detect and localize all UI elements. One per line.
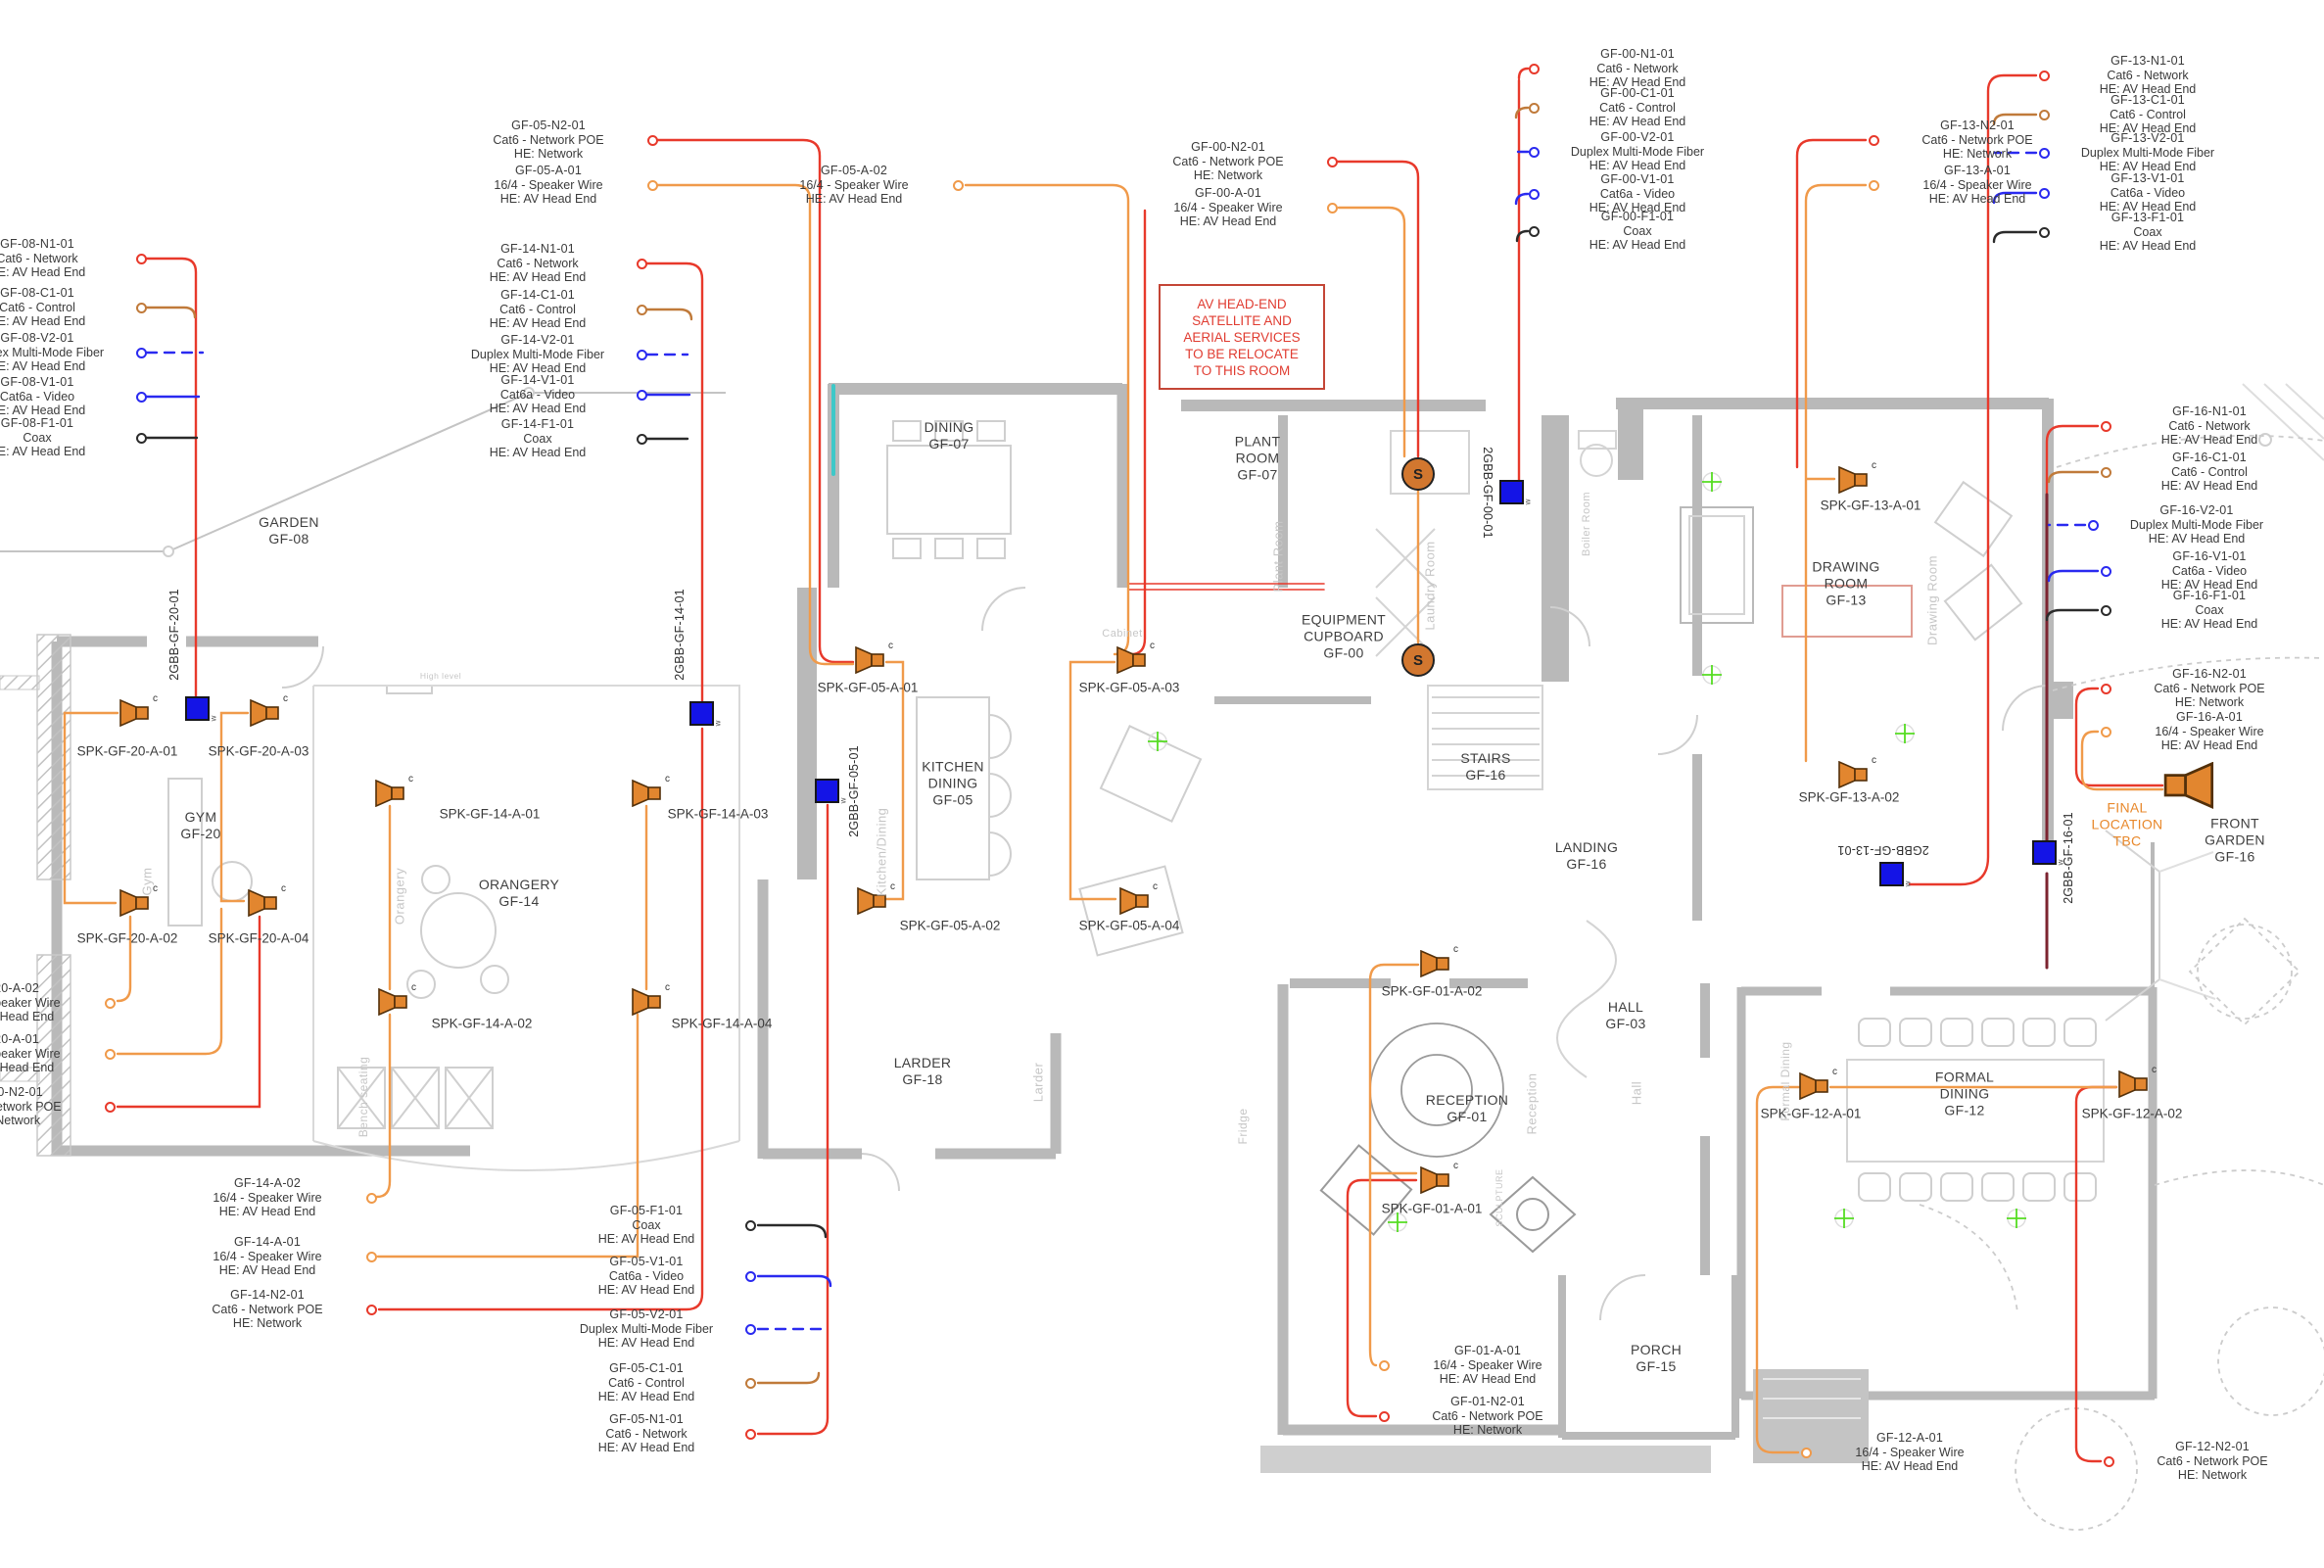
- speaker-label: SPK-GF-14-A-01: [440, 807, 541, 822]
- room-label-line: PLANT: [1235, 434, 1281, 451]
- callout-terminal-circle: [1529, 103, 1540, 114]
- room-label-line: GF-07: [925, 436, 974, 452]
- callout-cable: Cat6 - Network: [553, 1427, 739, 1442]
- cable-callout: GF-20-A-0116/4 - Speaker WireHE: AV Head…: [0, 1032, 99, 1075]
- architect-room-name: Reception: [1525, 1072, 1540, 1134]
- callout-cable: Coax: [445, 432, 631, 447]
- callout-dest: HE: AV Head End: [2116, 479, 2302, 494]
- speaker-icon: [2116, 1070, 2150, 1103]
- callout-id: GF-08-V1-01: [0, 375, 130, 390]
- callout-id: GF-12-N2-01: [2119, 1440, 2305, 1454]
- callout-id: GF-14-A-01: [174, 1235, 360, 1250]
- distribution-square-label: 2GBB-GF-05-01: [847, 745, 861, 837]
- callout-id: GF-13-F1-01: [2055, 211, 2241, 225]
- callout-cable: Duplex Multi-Mode Fiber: [2055, 146, 2241, 161]
- callout-id: GF-08-F1-01: [0, 416, 130, 431]
- callout-dest: HE: AV Head End: [445, 402, 631, 416]
- distribution-square-label: 2GBB-GF-20-01: [167, 589, 181, 681]
- callout-dest: HE: AV Head End: [553, 1232, 739, 1247]
- callout-dest: HE: AV Head End: [174, 1263, 360, 1278]
- callout-terminal-circle: [1529, 147, 1540, 158]
- distribution-square-label: 2GBB-GF-00-01: [1481, 447, 1494, 539]
- cable-callout: GF-16-A-0116/4 - Speaker WireHE: AV Head…: [2116, 710, 2302, 753]
- room-label-line: GARDEN: [2205, 832, 2265, 849]
- cable-callout: GF-13-V2-01Duplex Multi-Mode FiberHE: AV…: [2055, 131, 2241, 174]
- callout-terminal-circle: [2101, 467, 2111, 478]
- callout-cable: Cat6 - Network: [1544, 62, 1731, 76]
- callout-terminal-circle: [1801, 1448, 1812, 1458]
- callout-terminal-circle: [637, 390, 647, 401]
- callout-terminal-circle: [2104, 1456, 2114, 1467]
- callout-id: GF-13-C1-01: [2055, 93, 2241, 108]
- callout-cable: Duplex Multi-Mode Fiber: [445, 348, 631, 362]
- room-label-line: GARDEN: [259, 514, 319, 531]
- room-label-line: CUPBOARD: [1302, 629, 1386, 645]
- callout-id: GF-13-V1-01: [2055, 171, 2241, 186]
- speaker-icon: [376, 988, 409, 1021]
- ceiling-point-marker: [1700, 663, 1724, 687]
- cable-callout: GF-00-N2-01Cat6 - Network POEHE: Network: [1135, 140, 1321, 183]
- callout-terminal-circle: [637, 434, 647, 445]
- cable-callout: GF-14-C1-01Cat6 - ControlHE: AV Head End: [445, 288, 631, 331]
- callout-id: GF-05-C1-01: [553, 1361, 739, 1376]
- callout-terminal-circle: [637, 350, 647, 360]
- callout-terminal-circle: [2039, 227, 2050, 238]
- room-label-line: GF-14: [479, 893, 559, 910]
- callout-terminal-circle: [1379, 1360, 1390, 1371]
- cable-callout: GF-08-V1-01Cat6a - VideoHE: AV Head End: [0, 375, 130, 418]
- callout-terminal-circle: [1379, 1411, 1390, 1422]
- architect-room-name: Gym: [140, 868, 155, 896]
- cable-callout: GF-08-N1-01Cat6 - NetworkHE: AV Head End: [0, 237, 130, 280]
- speaker-icon: [1836, 761, 1870, 793]
- callout-id: GF-20-N2-01: [0, 1085, 99, 1100]
- callout-id: GF-01-A-01: [1395, 1344, 1581, 1358]
- room-label-line: GF-18: [894, 1071, 952, 1088]
- architect-room-name: Cabinet: [1102, 628, 1142, 640]
- room-label: STAIRSGF-16: [1460, 750, 1510, 784]
- callout-id: GF-16-V1-01: [2116, 549, 2302, 564]
- room-label: LANDINGGF-16: [1555, 839, 1618, 873]
- callout-terminal-circle: [745, 1271, 756, 1282]
- room-label: ORANGERYGF-14: [479, 877, 559, 910]
- cable-callout: GF-00-V2-01Duplex Multi-Mode FiberHE: AV…: [1544, 130, 1731, 173]
- callout-terminal-circle: [105, 998, 116, 1009]
- room-label-line: GF-03: [1605, 1016, 1645, 1032]
- callout-id: GF-00-V1-01: [1544, 172, 1731, 187]
- callout-dest: HE: AV Head End: [0, 314, 130, 329]
- callout-dest: HE: AV Head End: [1544, 159, 1731, 173]
- callout-terminal-circle: [637, 305, 647, 315]
- cable-callout: GF-16-N1-01Cat6 - NetworkHE: AV Head End: [2116, 404, 2302, 448]
- callout-id: GF-05-A-02: [761, 164, 947, 178]
- callout-dest: HE: AV Head End: [553, 1390, 739, 1404]
- speaker-label: SPK-GF-20-A-03: [209, 744, 309, 759]
- tbc-annotation: FINALLOCATIONTBC: [2092, 800, 2163, 850]
- callout-dest: HE: Network: [1135, 168, 1321, 183]
- callout-dest: HE: AV Head End: [445, 446, 631, 460]
- room-label: GYMGF-20: [180, 809, 220, 842]
- callout-dest: HE: AV Head End: [2116, 433, 2302, 448]
- room-label: PORCHGF-15: [1631, 1342, 1682, 1375]
- cable-callout: GF-05-N1-01Cat6 - NetworkHE: AV Head End: [553, 1412, 739, 1455]
- room-label: PLANTROOMGF-07: [1235, 434, 1281, 484]
- callout-cable: 16/4 - Speaker Wire: [0, 996, 99, 1011]
- callout-terminal-circle: [1869, 180, 1879, 191]
- room-label-line: ROOM: [1235, 451, 1281, 467]
- cable-callout: GF-20-N2-01Cat6 - Network POEHE: Network: [0, 1085, 99, 1128]
- callout-terminal-circle: [2101, 605, 2111, 616]
- callout-dest: HE: AV Head End: [174, 1205, 360, 1219]
- callout-terminal-circle: [637, 259, 647, 269]
- ceiling-point-marker: [2005, 1207, 2028, 1230]
- room-label-line: KITCHEN: [922, 759, 984, 776]
- callout-cable: Coax: [0, 431, 130, 446]
- callout-dest: HE: AV Head End: [0, 445, 130, 459]
- large-speaker-icon: [2160, 762, 2217, 814]
- speaker-c-mark: c: [411, 982, 416, 993]
- architect-room-name: Plant Room: [1271, 521, 1286, 593]
- cable-callout: GF-05-A-0116/4 - Speaker WireHE: AV Head…: [455, 164, 641, 207]
- callout-cable: Duplex Multi-Mode Fiber: [553, 1322, 739, 1337]
- cable-callout: GF-08-V2-01Duplex Multi-Mode FiberHE: AV…: [0, 331, 130, 374]
- relocation-note-line: TO BE RELOCATE: [1161, 346, 1323, 362]
- cable-callout: GF-13-A-0116/4 - Speaker WireHE: AV Head…: [1884, 164, 2070, 207]
- callout-terminal-circle: [745, 1324, 756, 1335]
- room-label-line: DINING: [1935, 1086, 1994, 1103]
- architect-room-name: Fridge: [1236, 1108, 1250, 1144]
- cable-callout: GF-14-V1-01Cat6a - VideoHE: AV Head End: [445, 373, 631, 416]
- relocation-note-line: AV HEAD-END: [1161, 296, 1323, 312]
- speaker-icon: [1418, 1166, 1451, 1199]
- satellite-point: S: [1401, 643, 1435, 677]
- room-label-line: GF-20: [180, 826, 220, 842]
- cable-callout: GF-14-A-0216/4 - Speaker WireHE: AV Head…: [174, 1176, 360, 1219]
- callout-cable: 16/4 - Speaker Wire: [455, 178, 641, 193]
- room-label-line: GF-13: [1812, 593, 1879, 609]
- callout-dest: HE: AV Head End: [1817, 1459, 2003, 1474]
- callout-id: GF-13-V2-01: [2055, 131, 2241, 146]
- callout-terminal-circle: [366, 1305, 377, 1315]
- room-label-line: EQUIPMENT: [1302, 612, 1386, 629]
- callout-cable: Cat6 - Network POE: [1884, 133, 2070, 148]
- ceiling-point-marker: [1893, 722, 1917, 745]
- callout-cable: Cat6 - Network: [2055, 69, 2241, 83]
- callout-dest: HE: AV Head End: [1395, 1372, 1581, 1387]
- ceiling-point-marker: [1832, 1207, 1856, 1230]
- distribution-square-label: 2GBB-GF-14-01: [673, 589, 687, 681]
- callout-terminal-circle: [2039, 110, 2050, 120]
- callout-id: GF-08-N1-01: [0, 237, 130, 252]
- cable-callout: GF-16-C1-01Cat6 - ControlHE: AV Head End: [2116, 451, 2302, 494]
- callout-id: GF-16-C1-01: [2116, 451, 2302, 465]
- room-label-line: HALL: [1605, 999, 1645, 1016]
- speaker-icon: [1836, 466, 1870, 499]
- cable-callout: GF-00-F1-01CoaxHE: AV Head End: [1544, 210, 1731, 253]
- room-label-line: GF-01: [1426, 1109, 1508, 1125]
- callout-id: GF-08-V2-01: [0, 331, 130, 346]
- callout-terminal-circle: [2101, 727, 2111, 737]
- callout-terminal-circle: [2039, 71, 2050, 81]
- relocation-note: AV HEAD-ENDSATELLITE ANDAERIAL SERVICEST…: [1159, 284, 1325, 390]
- callout-id: GF-01-N2-01: [1395, 1395, 1581, 1409]
- speaker-label: SPK-GF-20-A-01: [77, 744, 178, 759]
- callout-cable: 16/4 - Speaker Wire: [174, 1250, 360, 1264]
- callout-dest: HE: AV Head End: [0, 1061, 99, 1075]
- callout-id: GF-14-V2-01: [445, 333, 631, 348]
- room-label-line: GF-07: [1235, 467, 1281, 484]
- callout-terminal-circle: [136, 254, 147, 264]
- callout-dest: HE: Network: [174, 1316, 360, 1331]
- callout-dest: HE: AV Head End: [553, 1336, 739, 1351]
- room-label-line: RECEPTION: [1426, 1092, 1508, 1109]
- cable-callout: GF-01-A-0116/4 - Speaker WireHE: AV Head…: [1395, 1344, 1581, 1387]
- room-label: FORMALDININGGF-12: [1935, 1069, 1994, 1119]
- cable-callout: GF-13-C1-01Cat6 - ControlHE: AV Head End: [2055, 93, 2241, 136]
- speaker-c-mark: c: [408, 774, 413, 784]
- speaker-label: SPK-GF-14-A-03: [668, 807, 769, 822]
- callout-terminal-circle: [647, 135, 658, 146]
- room-label: GARDENGF-08: [259, 514, 319, 547]
- tbc-annotation-line: LOCATION: [2092, 817, 2163, 833]
- network-distribution-square: [185, 696, 210, 721]
- callout-dest: HE: AV Head End: [445, 316, 631, 331]
- speaker-label: SPK-GF-13-A-02: [1799, 790, 1900, 805]
- room-label-line: LANDING: [1555, 839, 1618, 856]
- callout-cable: 16/4 - Speaker Wire: [2116, 725, 2302, 739]
- callout-dest: HE: AV Head End: [0, 265, 130, 280]
- network-distribution-square: [1499, 480, 1524, 504]
- satellite-point: S: [1401, 457, 1435, 491]
- cable-callout: GF-16-V1-01Cat6a - VideoHE: AV Head End: [2116, 549, 2302, 593]
- callout-cable: Cat6a - Video: [553, 1269, 739, 1284]
- cable-callout: GF-16-V2-01Duplex Multi-Mode FiberHE: AV…: [2104, 503, 2290, 546]
- tbc-annotation-line: FINAL: [2092, 800, 2163, 817]
- room-label: HALLGF-03: [1605, 999, 1645, 1032]
- callout-dest: HE: Network: [2116, 695, 2302, 710]
- cable-callout: GF-16-N2-01Cat6 - Network POEHE: Network: [2116, 667, 2302, 710]
- callout-id: GF-00-V2-01: [1544, 130, 1731, 145]
- floor-plan-drawing: GF-08-N1-01Cat6 - NetworkHE: AV Head End…: [0, 0, 2324, 1568]
- callout-dest: HE: AV Head End: [0, 1010, 99, 1024]
- callout-id: GF-05-A-01: [455, 164, 641, 178]
- speaker-c-mark: c: [890, 881, 895, 892]
- callout-dest: HE: AV Head End: [0, 359, 130, 374]
- callout-cable: 16/4 - Speaker Wire: [1395, 1358, 1581, 1373]
- speaker-icon: [1418, 950, 1451, 982]
- callout-terminal-circle: [2039, 188, 2050, 199]
- callout-dest: HE: AV Head End: [2104, 532, 2290, 546]
- room-label-line: GF-16: [2205, 849, 2265, 866]
- callout-terminal-circle: [647, 180, 658, 191]
- speaker-c-mark: c: [888, 641, 893, 651]
- speaker-label: SPK-GF-13-A-01: [1821, 499, 1921, 513]
- callout-cable: Cat6a - Video: [445, 388, 631, 403]
- callout-terminal-circle: [745, 1378, 756, 1389]
- callout-terminal-circle: [366, 1193, 377, 1204]
- callout-id: GF-14-A-02: [174, 1176, 360, 1191]
- network-distribution-square: [815, 779, 839, 803]
- room-label: LARDERGF-18: [894, 1055, 952, 1088]
- room-label-line: GYM: [180, 809, 220, 826]
- callout-dest: HE: AV Head End: [445, 270, 631, 285]
- callout-id: GF-00-C1-01: [1544, 86, 1731, 101]
- callout-id: GF-05-V1-01: [553, 1255, 739, 1269]
- ceiling-point-marker: [1146, 730, 1169, 753]
- cable-callout: GF-05-V2-01Duplex Multi-Mode FiberHE: AV…: [553, 1307, 739, 1351]
- room-label-line: ROOM: [1812, 576, 1879, 593]
- speaker-label: SPK-GF-20-A-04: [209, 931, 309, 946]
- callout-id: GF-16-F1-01: [2116, 589, 2302, 603]
- speaker-c-mark: c: [281, 883, 286, 894]
- speaker-label: SPK-GF-14-A-04: [672, 1017, 773, 1031]
- architect-room-name: SCULPTURE: [1494, 1168, 1504, 1226]
- callout-id: GF-00-F1-01: [1544, 210, 1731, 224]
- callout-id: GF-13-N1-01: [2055, 54, 2241, 69]
- room-label: KITCHENDININGGF-05: [922, 759, 984, 809]
- callout-id: GF-05-N1-01: [553, 1412, 739, 1427]
- callout-cable: Duplex Multi-Mode Fiber: [0, 346, 130, 360]
- speaker-c-mark: c: [153, 693, 158, 704]
- callout-dest: HE: AV Head End: [2055, 239, 2241, 254]
- callout-id: GF-16-A-01: [2116, 710, 2302, 725]
- room-label-line: GF-12: [1935, 1103, 1994, 1119]
- room-label-line: LARDER: [894, 1055, 952, 1071]
- callout-cable: Cat6 - Network POE: [455, 133, 641, 148]
- cable-callout: GF-16-F1-01CoaxHE: AV Head End: [2116, 589, 2302, 632]
- room-label: EQUIPMENTCUPBOARDGF-00: [1302, 612, 1386, 662]
- callout-cable: Cat6 - Network POE: [2119, 1454, 2305, 1469]
- callout-cable: Cat6 - Control: [2055, 108, 2241, 122]
- cable-callout: GF-12-N2-01Cat6 - Network POEHE: Network: [2119, 1440, 2305, 1483]
- distribution-square-label: 2GBB-GF-13-01: [1837, 843, 1929, 857]
- network-distribution-square: [1879, 862, 1904, 886]
- room-label-line: DINING: [925, 419, 974, 436]
- speaker-icon: [1115, 646, 1148, 679]
- speaker-icon: [630, 780, 663, 812]
- callout-dest: HE: Network: [455, 147, 641, 162]
- callout-dest: HE: AV Head End: [1544, 238, 1731, 253]
- speaker-label: SPK-GF-05-A-03: [1079, 681, 1180, 695]
- callout-dest: HE: AV Head End: [1544, 115, 1731, 129]
- callout-terminal-circle: [1327, 203, 1338, 214]
- square-w-mark: w: [209, 716, 217, 722]
- square-w-mark: w: [1903, 881, 1912, 887]
- room-label: DRAWINGROOMGF-13: [1812, 559, 1879, 609]
- architect-room-name: Kitchen/Dining: [875, 808, 889, 897]
- callout-dest: HE: AV Head End: [2116, 738, 2302, 753]
- callout-id: GF-16-N2-01: [2116, 667, 2302, 682]
- callout-id: GF-00-A-01: [1135, 186, 1321, 201]
- speaker-icon: [373, 780, 406, 812]
- speaker-c-mark: c: [1453, 944, 1458, 955]
- callout-id: GF-16-V2-01: [2104, 503, 2290, 518]
- cable-callout: GF-00-N1-01Cat6 - NetworkHE: AV Head End: [1544, 47, 1731, 90]
- callout-cable: Cat6a - Video: [2055, 186, 2241, 201]
- speaker-label: SPK-GF-01-A-02: [1382, 984, 1483, 999]
- speaker-label: SPK-GF-14-A-02: [432, 1017, 533, 1031]
- callout-dest: HE: AV Head End: [553, 1441, 739, 1455]
- room-label-line: STAIRS: [1460, 750, 1510, 767]
- speaker-label: SPK-GF-05-A-02: [900, 919, 1001, 933]
- callout-cable: Cat6 - Network: [2116, 419, 2302, 434]
- room-label-line: FORMAL: [1935, 1069, 1994, 1086]
- speaker-icon: [1797, 1072, 1830, 1105]
- callout-cable: Cat6a - Video: [2116, 564, 2302, 579]
- callout-id: GF-12-A-01: [1817, 1431, 2003, 1446]
- callout-id: GF-13-A-01: [1884, 164, 2070, 178]
- callout-terminal-circle: [136, 433, 147, 444]
- callout-cable: Cat6 - Network POE: [2116, 682, 2302, 696]
- callout-id: GF-05-V2-01: [553, 1307, 739, 1322]
- speaker-label: SPK-GF-05-A-04: [1079, 919, 1180, 933]
- callout-terminal-circle: [136, 303, 147, 313]
- network-distribution-square: [689, 701, 714, 726]
- callout-cable: Cat6 - Network POE: [1395, 1409, 1581, 1424]
- cable-callout: GF-13-V1-01Cat6a - VideoHE: AV Head End: [2055, 171, 2241, 214]
- callout-terminal-circle: [1529, 189, 1540, 200]
- architect-room-name: Drawing Room: [1925, 555, 1940, 645]
- callout-dest: HE: AV Head End: [2116, 617, 2302, 632]
- cable-callout: GF-00-C1-01Cat6 - ControlHE: AV Head End: [1544, 86, 1731, 129]
- callout-terminal-circle: [745, 1429, 756, 1440]
- architect-room-name: Bench seating: [356, 1057, 370, 1138]
- callout-id: GF-05-F1-01: [553, 1204, 739, 1218]
- callout-id: GF-14-N2-01: [174, 1288, 360, 1303]
- callout-dest: HE: Network: [0, 1114, 99, 1128]
- callout-id: GF-16-N1-01: [2116, 404, 2302, 419]
- callout-cable: Cat6 - Network: [0, 252, 130, 266]
- cable-callout: GF-05-V1-01Cat6a - VideoHE: AV Head End: [553, 1255, 739, 1298]
- speaker-c-mark: c: [283, 693, 288, 704]
- furniture-layer: [0, 384, 2324, 1530]
- relocation-note-line: AERIAL SERVICES: [1161, 329, 1323, 346]
- ceiling-point-marker: [1700, 470, 1724, 494]
- callout-terminal-circle: [105, 1102, 116, 1113]
- callout-dest: HE: AV Head End: [553, 1283, 739, 1298]
- callout-id: GF-13-N2-01: [1884, 119, 2070, 133]
- callout-cable: Cat6a - Video: [1544, 187, 1731, 202]
- callout-id: GF-00-N1-01: [1544, 47, 1731, 62]
- callout-cable: Cat6 - Control: [445, 303, 631, 317]
- room-label: FRONTGARDENGF-16: [2205, 816, 2265, 866]
- callout-cable: Coax: [2116, 603, 2302, 618]
- cable-callout: GF-00-A-0116/4 - Speaker WireHE: AV Head…: [1135, 186, 1321, 229]
- speaker-icon: [118, 699, 151, 732]
- callout-terminal-circle: [2101, 684, 2111, 694]
- speaker-icon: [853, 646, 886, 679]
- callout-cable: Cat6 - Network POE: [1135, 155, 1321, 169]
- callout-cable: Cat6 - Control: [0, 301, 130, 315]
- room-label-line: DRAWING: [1812, 559, 1879, 576]
- callout-cable: 16/4 - Speaker Wire: [1135, 201, 1321, 215]
- callout-cable: 16/4 - Speaker Wire: [761, 178, 947, 193]
- cable-callout: GF-12-A-0116/4 - Speaker WireHE: AV Head…: [1817, 1431, 2003, 1474]
- room-label: RECEPTIONGF-01: [1426, 1092, 1508, 1125]
- speaker-c-mark: c: [1153, 881, 1158, 892]
- room-label-line: GF-16: [1555, 856, 1618, 873]
- cable-callout: GF-14-A-0116/4 - Speaker WireHE: AV Head…: [174, 1235, 360, 1278]
- room-label-line: GF-16: [1460, 767, 1510, 784]
- speaker-c-mark: c: [1872, 460, 1876, 471]
- speaker-icon: [246, 889, 279, 922]
- tbc-annotation-line: TBC: [2092, 833, 2163, 850]
- callout-cable: Cat6 - Network POE: [174, 1303, 360, 1317]
- speaker-c-mark: c: [665, 774, 670, 784]
- cable-callout: GF-13-F1-01CoaxHE: AV Head End: [2055, 211, 2241, 254]
- callout-cable: 16/4 - Speaker Wire: [0, 1047, 99, 1062]
- callout-cable: Duplex Multi-Mode Fiber: [2104, 518, 2290, 533]
